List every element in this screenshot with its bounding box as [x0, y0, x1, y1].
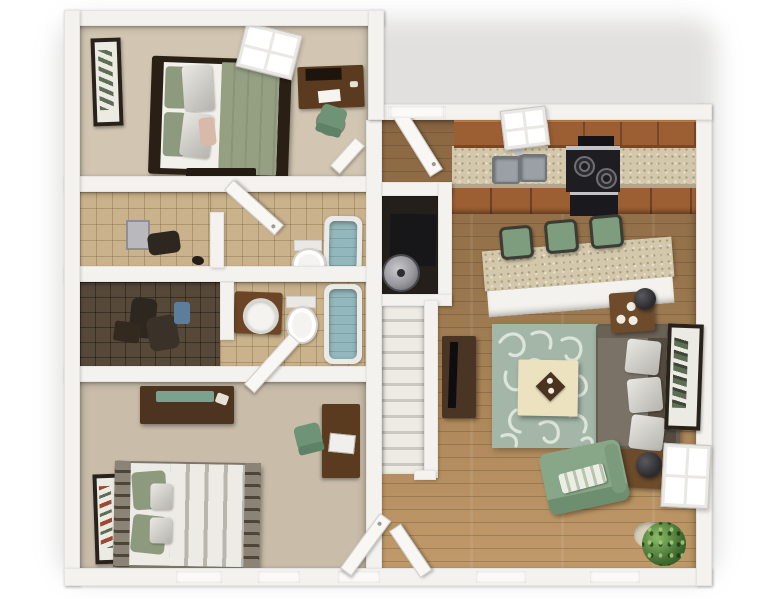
desk-laptop [328, 433, 356, 455]
staircase-treads [382, 306, 424, 474]
closet-a-clothes [147, 230, 182, 256]
white-pillow [149, 517, 171, 543]
table-lamp [636, 452, 662, 478]
burner [596, 168, 617, 189]
bedroom1-wall-art [90, 38, 123, 127]
walkin-towels [174, 302, 190, 324]
floor-plan [0, 0, 778, 599]
faucet [514, 149, 523, 155]
plant-foliage [642, 522, 686, 566]
sofa-pillow [624, 338, 661, 375]
potted-plant [632, 516, 686, 568]
window-pane [688, 448, 708, 475]
window-pane [245, 27, 272, 50]
sage-duvet [218, 62, 280, 176]
wall-bath-divider [64, 266, 380, 282]
wall-utility-south [382, 294, 452, 306]
wall-utility-east [438, 182, 452, 306]
desk-item [350, 81, 358, 87]
white-pillow [150, 483, 172, 509]
wall-bedroom2-north [64, 366, 380, 382]
outer-wall-spine-upper [368, 10, 384, 120]
bedroom2-bed [113, 461, 261, 570]
art-content [99, 486, 113, 548]
heater-valve [397, 269, 405, 277]
bathroom-b-bathtub [324, 284, 362, 364]
bar-stool [589, 214, 625, 250]
pink-accent-pillow [198, 117, 217, 147]
decor-tray [536, 372, 566, 402]
tub-basin [329, 289, 357, 359]
bar-stool [499, 225, 535, 261]
bathroom-b-vanity [233, 291, 282, 335]
stove-cooktop [566, 146, 620, 192]
walkin-bench [113, 320, 142, 343]
window-pane [504, 112, 523, 129]
living-room-window [660, 443, 711, 509]
closet-a-wall-cabinet [126, 220, 150, 250]
bedroom2-dresser [140, 386, 234, 424]
entry-doorway-gap [390, 106, 444, 118]
living-window-south [476, 571, 526, 583]
window-pane [666, 447, 686, 474]
bedroom2-window-south [176, 571, 222, 583]
table-lamp [634, 288, 656, 310]
tub-basin [329, 221, 358, 269]
water-heater [384, 256, 418, 290]
candle [546, 377, 554, 385]
sink-basin [492, 156, 520, 184]
candle [547, 387, 555, 395]
wall-partition-b [220, 282, 234, 340]
kitchen-window [500, 105, 551, 150]
dresser-item [215, 392, 230, 406]
bar-stool [544, 219, 580, 255]
sofa-pillow [628, 414, 666, 452]
outer-wall-north-left [64, 10, 384, 26]
candle [628, 316, 638, 326]
kitchen-double-sink [492, 154, 546, 182]
bedroom2-doorway [338, 571, 380, 583]
dresser-runner [156, 391, 214, 402]
sink-basin [519, 154, 547, 182]
candle [616, 314, 626, 324]
wall-partition-a [210, 212, 224, 268]
sofa-pillow [627, 377, 664, 414]
stove-front [570, 192, 618, 216]
headboard-slats [113, 461, 131, 567]
living-room-wall-art [664, 323, 704, 430]
footboard-slats [243, 463, 261, 569]
window-pane [665, 476, 685, 503]
window-pane [686, 478, 706, 505]
white-pillow [181, 64, 214, 112]
window-pane [266, 53, 293, 76]
outer-wall-west [64, 10, 80, 586]
stair-railing-wall [424, 300, 438, 478]
wall-bedroom1-south [64, 176, 380, 192]
burner [574, 156, 595, 177]
stair-newel [414, 470, 436, 480]
window-pane [527, 127, 546, 144]
window-pane [525, 110, 544, 127]
window-pane [240, 46, 267, 69]
bedroom2-window-south [258, 571, 300, 583]
window-pane [271, 33, 298, 56]
art-content [672, 338, 688, 408]
desk-monitor [305, 68, 341, 81]
coffee-table [518, 359, 579, 416]
living-window-south [590, 571, 640, 583]
striped-duvet [169, 464, 245, 567]
wall-spine [366, 120, 382, 570]
vanity-round-sink [242, 297, 279, 334]
window-pane [506, 130, 525, 147]
art-content [98, 50, 114, 110]
